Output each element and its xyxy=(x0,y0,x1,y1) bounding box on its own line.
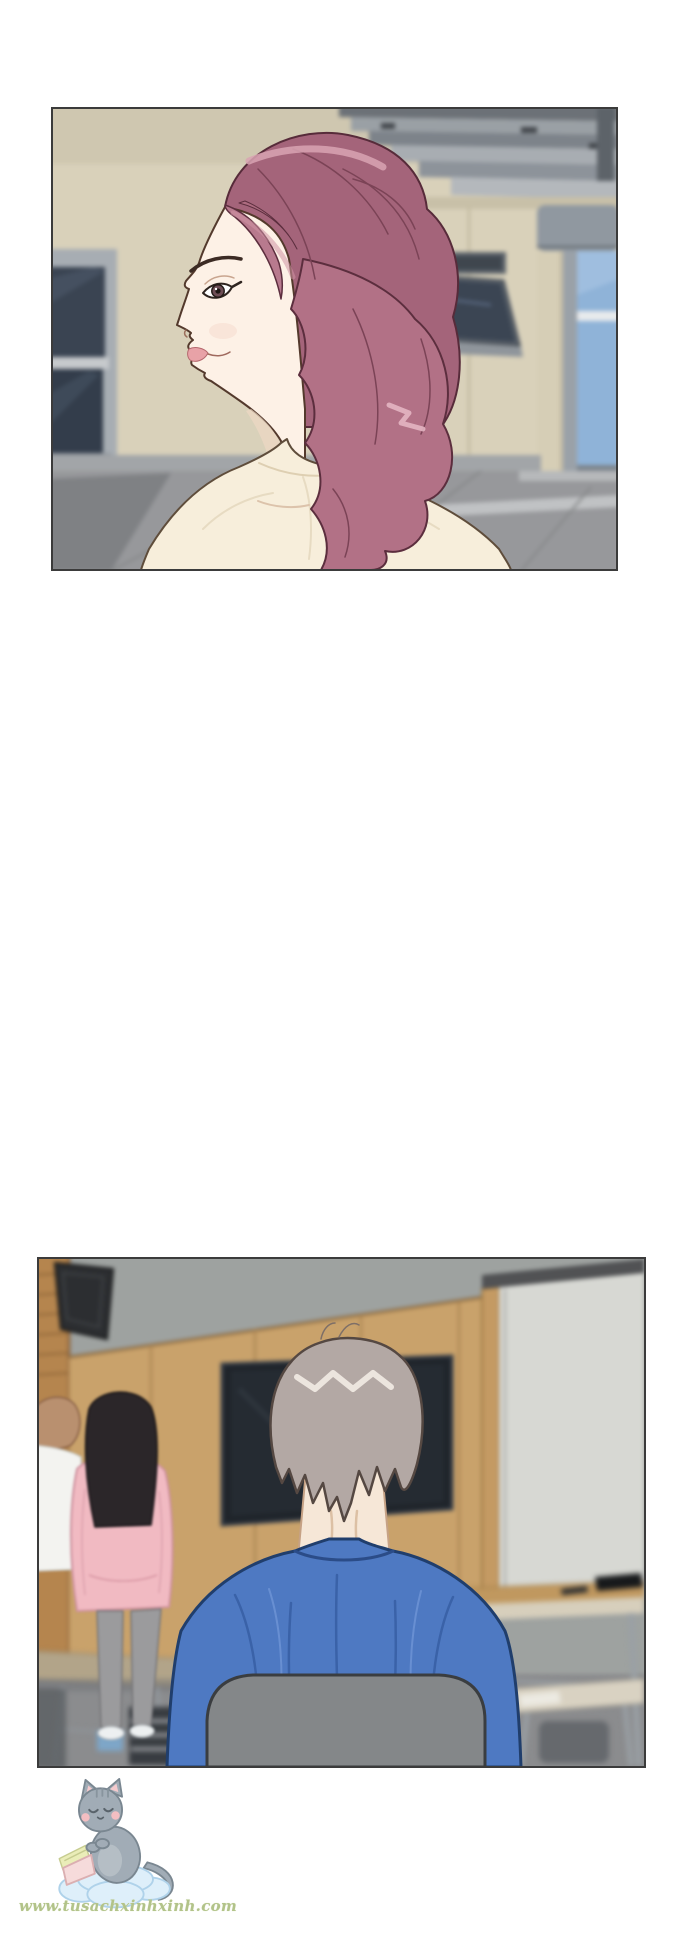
cat-head xyxy=(79,1779,122,1832)
panel-2-art xyxy=(39,1259,644,1766)
webtoon-page: { "page": { "background_color": "#ffffff… xyxy=(0,0,690,1935)
chair-back xyxy=(207,1675,485,1766)
comic-panel-woman-profile xyxy=(51,107,618,571)
black-hair xyxy=(86,1392,157,1527)
whiteboard xyxy=(482,1259,644,1609)
cat-paw xyxy=(96,1839,109,1848)
left-window xyxy=(53,249,117,467)
roof-bracket xyxy=(597,109,614,181)
panel-1-art xyxy=(53,109,616,569)
wall-speaker xyxy=(55,1263,113,1339)
watermark-url-text: www.tusachxinhxinh.com xyxy=(16,1897,240,1915)
cat-mascot xyxy=(48,1778,198,1913)
entrance-door xyxy=(537,205,616,475)
comic-panel-classroom xyxy=(37,1257,646,1768)
